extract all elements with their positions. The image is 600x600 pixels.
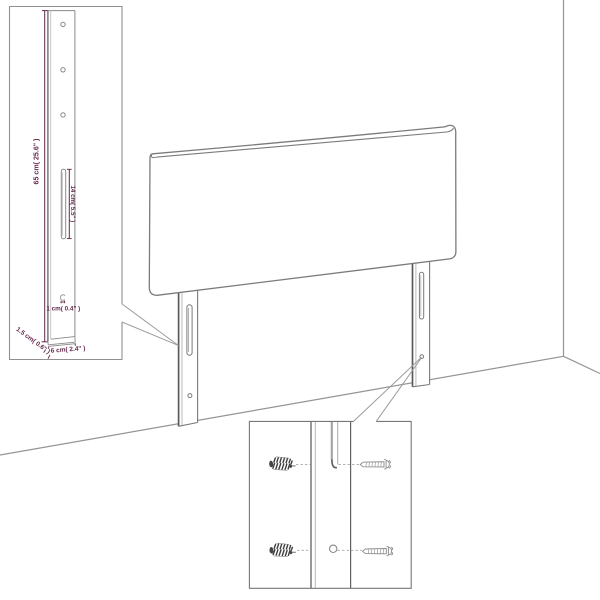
svg-text:65 cm( 25.6" ): 65 cm( 25.6" ) [32, 138, 40, 185]
svg-text:14 cm( 5.5" ): 14 cm( 5.5" ) [69, 185, 76, 222]
svg-text:1 cm( 0.4" ): 1 cm( 0.4" ) [46, 305, 80, 312]
